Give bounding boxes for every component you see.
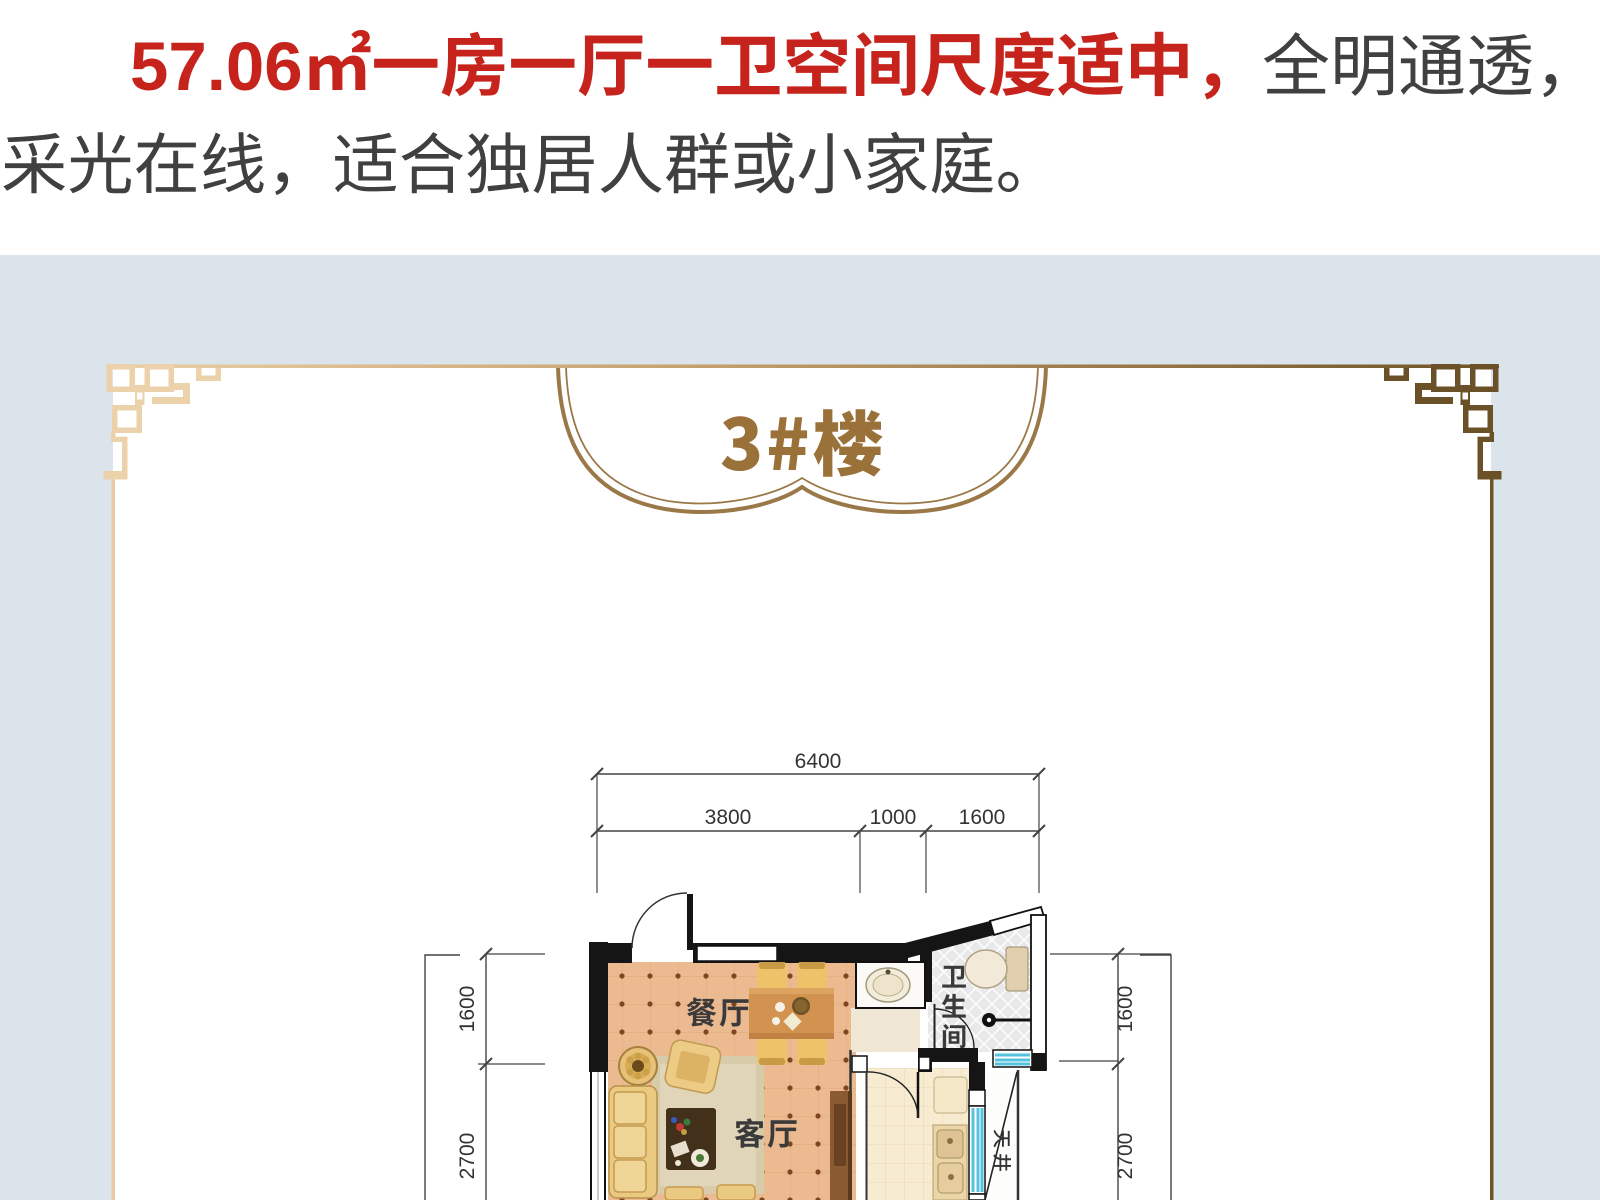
svg-text:1600: 1600 (959, 806, 1006, 829)
svg-text:1000: 1000 (870, 806, 917, 829)
svg-text:1600: 1600 (1114, 986, 1137, 1033)
svg-text:57.06: 57.06 (130, 28, 303, 105)
svg-text:6400: 6400 (795, 750, 842, 773)
svg-text:2700: 2700 (1114, 1133, 1137, 1180)
svg-text:1600: 1600 (456, 986, 479, 1033)
svg-text:2700: 2700 (456, 1133, 479, 1180)
svg-text:3800: 3800 (705, 806, 752, 829)
